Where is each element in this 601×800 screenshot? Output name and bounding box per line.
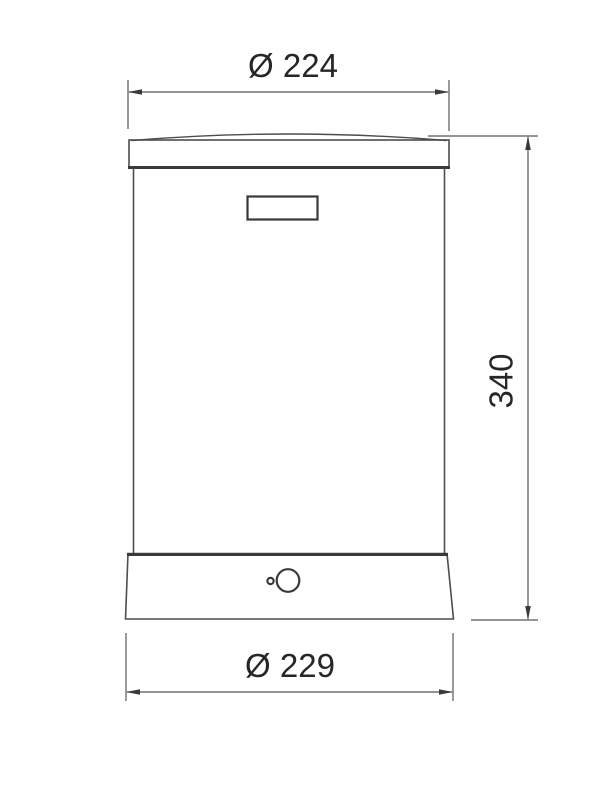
arrow-right-icon [439,689,453,695]
arrow-up-icon [525,136,531,150]
dimension-bottom-diameter: Ø 229 [126,633,453,701]
power-knob-circle [277,569,300,592]
technical-drawing: Ø 224 340 Ø 229 [0,0,601,800]
arrow-down-icon [525,606,531,620]
dim-label-bottom-diameter: Ø 229 [245,647,335,684]
arrow-left-icon [126,689,140,695]
indicator-dot-icon [267,578,273,584]
lid-band [129,140,449,168]
label-window [248,197,318,220]
base [126,554,454,620]
drawing-canvas: Ø 224 340 Ø 229 [0,0,601,800]
body [134,168,445,553]
dimension-top-diameter: Ø 224 [128,47,449,131]
dim-label-top-diameter: Ø 224 [248,47,338,84]
dim-label-height: 340 [483,353,520,408]
arrow-right-icon [435,89,449,95]
arrow-left-icon [128,89,142,95]
base-outline [126,554,454,620]
lid [128,134,450,168]
